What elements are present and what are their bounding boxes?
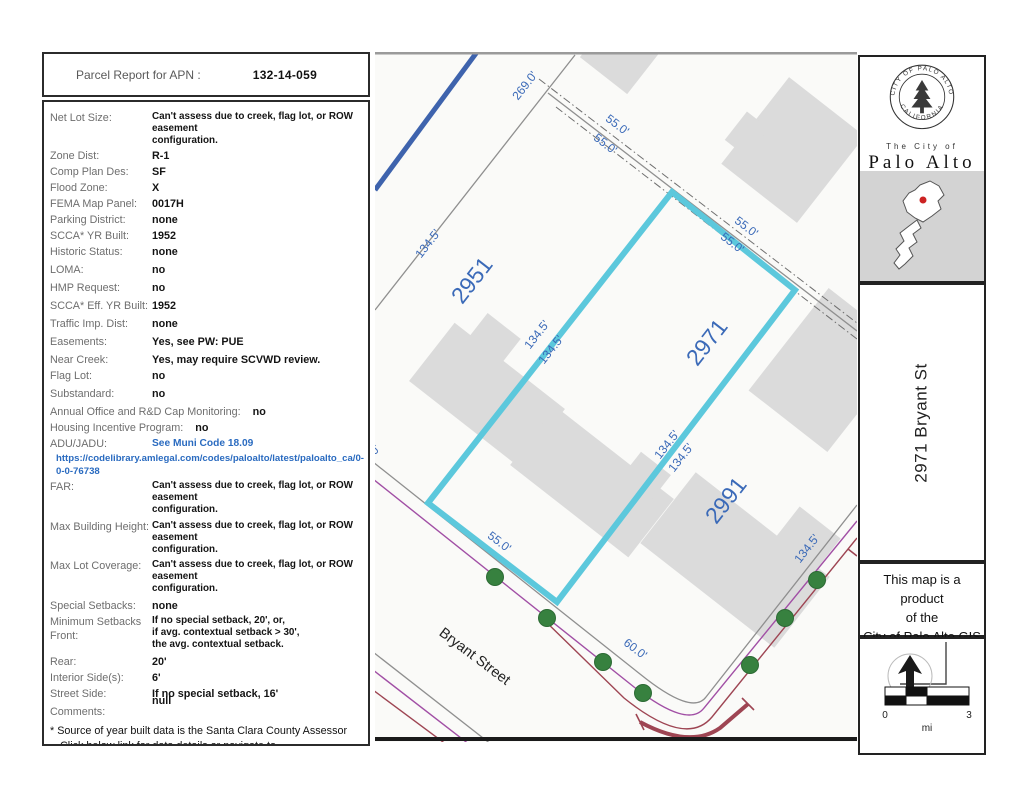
field-label: Max Lot Coverage:: [50, 559, 152, 595]
scale-unit-label: mi: [922, 723, 933, 734]
field-label: HMP Request:: [50, 281, 152, 295]
field-row: HMP Request: no: [50, 281, 362, 295]
north-arrow-icon: [898, 655, 922, 691]
credit-line: This map is a product: [860, 571, 984, 609]
field-row: Zone Dist: R-1: [50, 149, 362, 163]
field-value: Can't assess due to creek, flag lot, or …: [152, 480, 362, 516]
field-value: 1952: [152, 299, 362, 313]
field-row: Comments: null: [50, 705, 362, 719]
field-label: Net Lot Size:: [50, 111, 152, 147]
field-row: Rear: 20': [50, 655, 362, 669]
field-row: FAR: Can't assess due to creek, flag lot…: [50, 480, 362, 516]
field-value: no: [152, 281, 362, 295]
apn-value: 132-14-059: [253, 68, 317, 82]
report-fields-panel: Net Lot Size: Can't assess due to creek,…: [42, 100, 370, 746]
field-value: 0017H: [152, 197, 362, 211]
footnote: * Source of year built data is the Santa…: [50, 724, 362, 746]
field-row: Max Building Height: Can't assess due to…: [50, 520, 362, 556]
field-row: Traffic Imp. Dist: none: [50, 317, 362, 331]
field-label: Interior Side(s):: [50, 671, 152, 685]
field-label: Flood Zone:: [50, 181, 152, 195]
address-box: 2971 Bryant St: [858, 283, 986, 562]
field-value: no: [195, 421, 362, 435]
seal-tree-icon: [911, 80, 932, 113]
field-row: LOMA: no: [50, 263, 362, 277]
field-value: X: [152, 181, 362, 195]
field-label: Max Building Height:: [50, 520, 152, 556]
field-value: R-1: [152, 149, 362, 163]
field-row: Flag Lot: no: [50, 369, 362, 383]
field-row: Flood Zone: X: [50, 181, 362, 195]
field-value: 6': [152, 671, 362, 685]
field-value: none: [152, 245, 362, 259]
field-row: SCCA* Eff. YR Built: 1952: [50, 299, 362, 313]
field-row: Housing Incentive Program: no: [50, 421, 362, 435]
field-label: Historic Status:: [50, 245, 152, 259]
credit-line: of the: [860, 609, 984, 628]
city-seal: CITY OF PALO ALTO CALIFORNIA: [860, 57, 984, 141]
field-row: Interior Side(s): 6': [50, 671, 362, 685]
field-row: Near Creek: Yes, may require SCVWD revie…: [50, 353, 362, 367]
field-label: LOMA:: [50, 263, 152, 277]
field-row: ADU/JADU: See Muni Code 18.09: [50, 437, 362, 451]
field-label: Parking District:: [50, 213, 152, 227]
report-title: Parcel Report for APN :: [76, 68, 201, 82]
field-value: no: [152, 369, 362, 383]
field-value: Can't assess due to creek, flag lot, or …: [152, 559, 362, 595]
field-value: 20': [152, 655, 362, 669]
field-value-link[interactable]: See Muni Code 18.09: [152, 437, 362, 451]
field-value: none: [152, 213, 362, 227]
field-label: Near Creek:: [50, 353, 152, 367]
field-row: Net Lot Size: Can't assess due to creek,…: [50, 111, 362, 147]
field-row: Parking District: none: [50, 213, 362, 227]
city-logo-box: CITY OF PALO ALTO CALIFORNIA The City of…: [858, 55, 986, 283]
field-value-link[interactable]: https://codelibrary.amlegal.com/codes/pa…: [50, 453, 364, 478]
field-value: none: [152, 317, 362, 331]
address-label: 2971 Bryant St: [912, 363, 932, 482]
field-row: Substandard: no: [50, 387, 362, 401]
parcel-map: 269.0' 55.0' 55.0' 134.5' 2951 134.5' 13…: [375, 52, 857, 742]
field-label: Minimum Setbacks Front:: [50, 615, 152, 651]
field-value: If no special setback, 20', or, if avg. …: [152, 615, 362, 651]
field-value: no: [152, 263, 362, 277]
map-credit-box: This map is a product of the City of Pal…: [858, 562, 986, 637]
field-value: null: [152, 694, 362, 708]
footnote-line: Click below link for data details or nav…: [50, 739, 362, 746]
field-value: 1952: [152, 229, 362, 243]
field-label: Comments:: [50, 705, 152, 719]
field-label: Annual Office and R&D Cap Monitoring:: [50, 405, 241, 419]
field-label: Rear:: [50, 655, 152, 669]
field-label: ADU/JADU:: [50, 437, 152, 451]
field-value: SF: [152, 165, 362, 179]
locator-inset-map: [860, 171, 984, 281]
field-row: SCCA* YR Built: 1952: [50, 229, 362, 243]
field-value: Yes, may require SCVWD review.: [152, 353, 362, 367]
field-label: Zone Dist:: [50, 149, 152, 163]
field-label: SCCA* Eff. YR Built:: [50, 299, 152, 313]
field-label: Comp Plan Des:: [50, 165, 152, 179]
field-label: FAR:: [50, 480, 152, 516]
map-top-border: [375, 52, 857, 55]
field-label: Easements:: [50, 335, 152, 349]
scale-end-label: 3: [966, 710, 972, 721]
field-label: Street Side:: [50, 687, 152, 701]
parcel-report-page: Parcel Report for APN : 132-14-059 Net L…: [0, 0, 1024, 791]
field-row: Special Setbacks: none: [50, 599, 362, 613]
field-row: Minimum Setbacks Front: If no special se…: [50, 615, 362, 651]
footnote-line: * Source of year built data is the Santa…: [50, 724, 362, 739]
field-label: Flag Lot:: [50, 369, 152, 383]
city-boundary-shape: [894, 181, 944, 269]
map-bottom-border: [375, 737, 857, 741]
field-value: no: [152, 387, 362, 401]
field-value: Yes, see PW: PUE: [152, 335, 362, 349]
field-label: Special Setbacks:: [50, 599, 152, 613]
scale-bar: [885, 687, 969, 705]
field-label: Substandard:: [50, 387, 152, 401]
fields-list: Net Lot Size: Can't assess due to creek,…: [50, 111, 362, 719]
field-value: Can't assess due to creek, flag lot, or …: [152, 111, 362, 147]
location-dot: [920, 197, 927, 204]
field-row: Annual Office and R&D Cap Monitoring: no: [50, 405, 362, 419]
field-row: https://codelibrary.amlegal.com/codes/pa…: [50, 453, 362, 478]
field-row: FEMA Map Panel: 0017H: [50, 197, 362, 211]
field-row: Easements: Yes, see PW: PUE: [50, 335, 362, 349]
field-label: SCCA* YR Built:: [50, 229, 152, 243]
field-label: Housing Incentive Program:: [50, 421, 183, 435]
field-row: Comp Plan Des: SF: [50, 165, 362, 179]
city-name-small: The City of: [860, 142, 984, 151]
north-arrow-scale-box: 0 3 mi: [858, 637, 986, 755]
field-label: Traffic Imp. Dist:: [50, 317, 152, 331]
city-seal-icon: CITY OF PALO ALTO CALIFORNIA: [885, 62, 959, 136]
field-value: Can't assess due to creek, flag lot, or …: [152, 520, 362, 556]
report-header: Parcel Report for APN : 132-14-059: [42, 52, 370, 97]
field-value: no: [253, 405, 362, 419]
field-label: FEMA Map Panel:: [50, 197, 152, 211]
field-row: Max Lot Coverage: Can't assess due to cr…: [50, 559, 362, 595]
field-row: Historic Status: none: [50, 245, 362, 259]
field-value: none: [152, 599, 362, 613]
scale-start-label: 0: [882, 710, 888, 721]
